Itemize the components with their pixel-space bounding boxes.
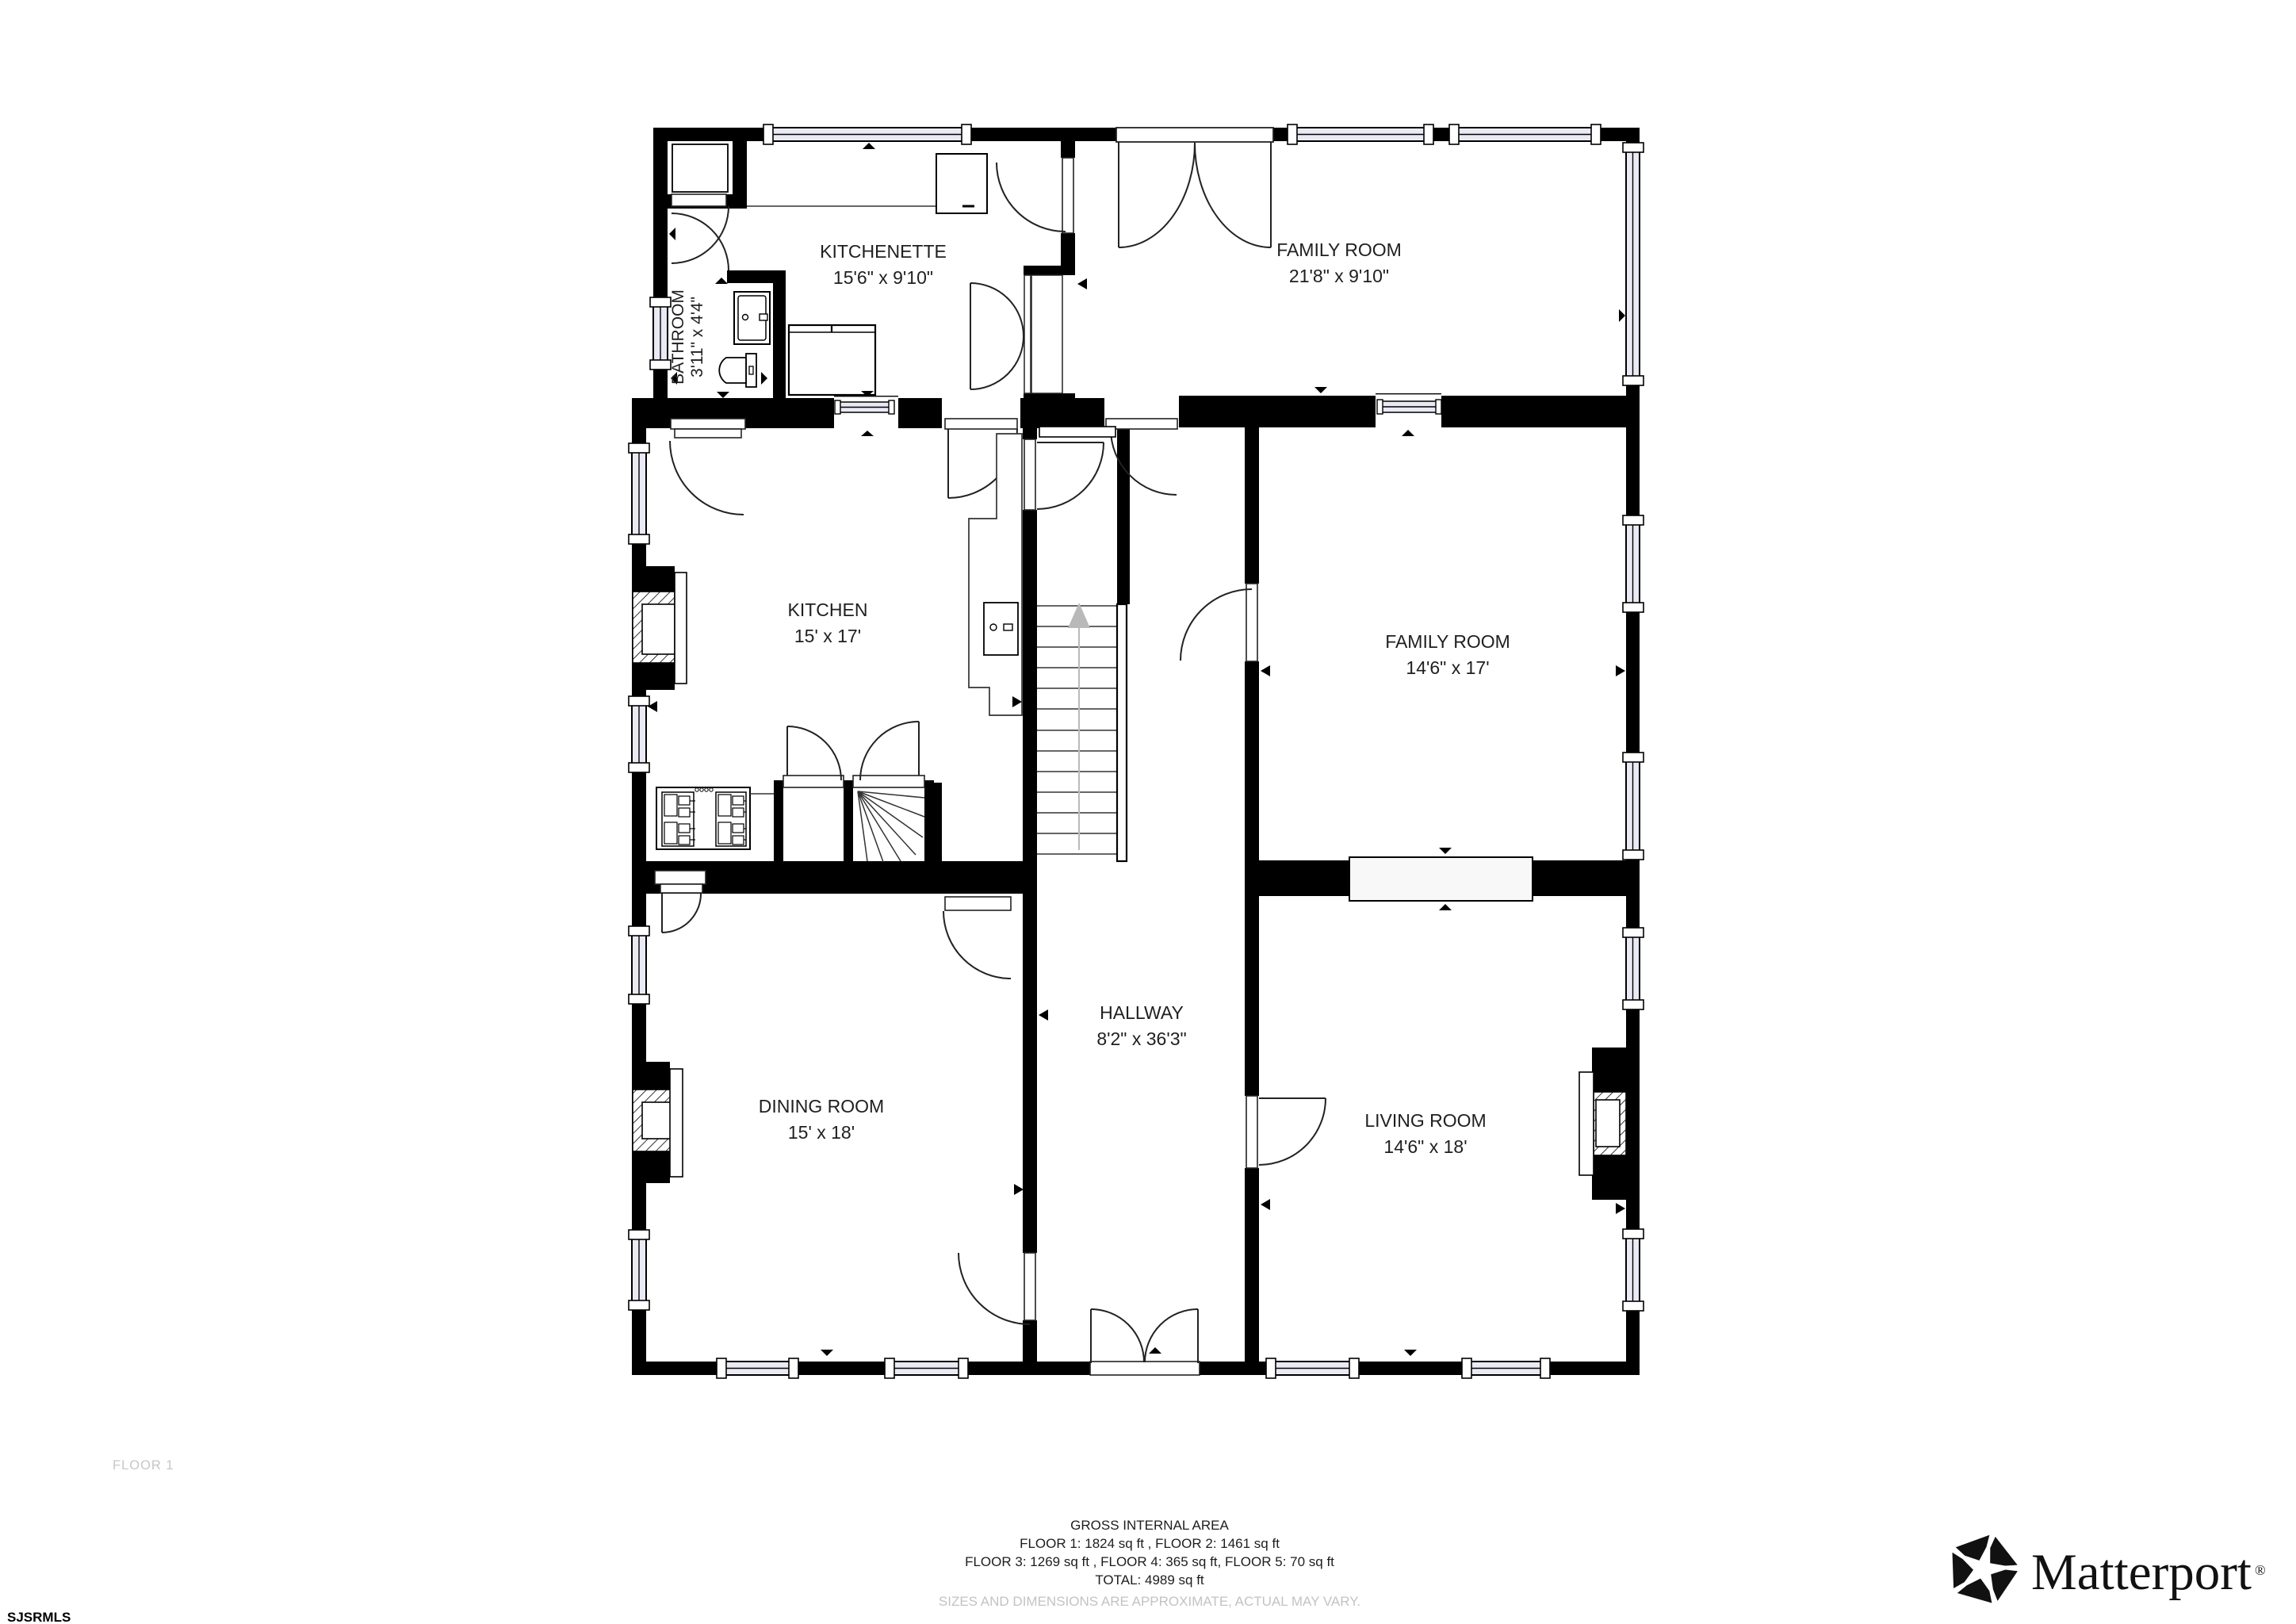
svg-text:FLOOR 1: FLOOR 1 (113, 1458, 174, 1473)
svg-text:21'8" x 9'10": 21'8" x 9'10" (1289, 266, 1389, 286)
svg-text:TOTAL: 4989 sq ft: TOTAL: 4989 sq ft (1095, 1572, 1204, 1588)
svg-text:SIZES AND DIMENSIONS ARE APPRO: SIZES AND DIMENSIONS ARE APPROXIMATE, AC… (939, 1594, 1360, 1609)
svg-text:GROSS INTERNAL AREA: GROSS INTERNAL AREA (1070, 1518, 1229, 1533)
svg-text:HALLWAY: HALLWAY (1100, 1002, 1184, 1023)
svg-text:3'11" x 4'4": 3'11" x 4'4" (688, 297, 706, 377)
svg-text:FAMILY ROOM: FAMILY ROOM (1385, 631, 1510, 652)
svg-text:15'6" x 9'10": 15'6" x 9'10" (833, 267, 933, 288)
svg-text:BATHROOM: BATHROOM (669, 289, 687, 385)
svg-text:14'6" x 18': 14'6" x 18' (1383, 1136, 1467, 1157)
svg-text:Matterport: Matterport (2031, 1544, 2252, 1601)
svg-text:FLOOR 1: 1824 sq ft , FLOOR 2:: FLOOR 1: 1824 sq ft , FLOOR 2: 1461 sq f… (1020, 1536, 1280, 1551)
svg-text:KITCHEN: KITCHEN (788, 599, 868, 620)
svg-text:FAMILY ROOM: FAMILY ROOM (1276, 239, 1402, 260)
svg-text:DINING ROOM: DINING ROOM (759, 1096, 884, 1116)
svg-text:15' x 18': 15' x 18' (788, 1122, 855, 1143)
svg-text:8'2" x 36'3": 8'2" x 36'3" (1096, 1028, 1186, 1049)
svg-text:LIVING ROOM: LIVING ROOM (1364, 1110, 1486, 1131)
svg-text:14'6" x 17': 14'6" x 17' (1406, 657, 1489, 678)
svg-text:KITCHENETTE: KITCHENETTE (820, 241, 947, 262)
svg-text:FLOOR 3: 1269 sq ft , FLOOR 4:: FLOOR 3: 1269 sq ft , FLOOR 4: 365 sq ft… (965, 1554, 1334, 1569)
svg-text:SJSRMLS: SJSRMLS (7, 1610, 71, 1624)
svg-text:15' x 17': 15' x 17' (794, 626, 861, 646)
svg-text:®: ® (2255, 1562, 2266, 1578)
